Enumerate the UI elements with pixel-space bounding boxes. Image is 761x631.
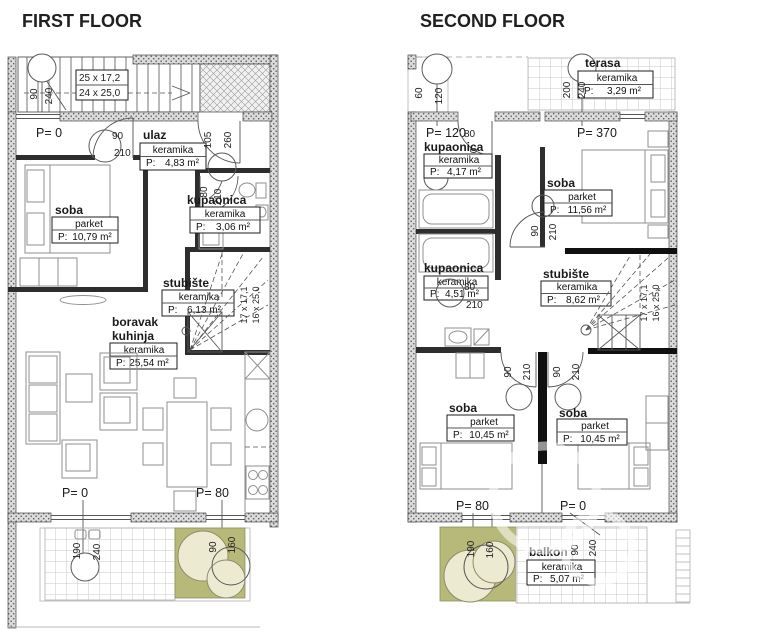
ff-stair-run-top: 25 x 17,2 [79,73,121,84]
second-floor-plan: SECOND FLOOR 60 120 terasa keramika P: 3… [408,11,690,603]
sf-soba1-name: soba [547,176,575,190]
ff-kupaonica-finish: keramika [205,209,246,220]
ff-dim-260: 260 [223,131,234,148]
sf-terasa-slider [620,115,645,119]
ff-soba-area: 10,79 m² [72,232,112,243]
sf-stubiste-area: 8,62 m² [566,295,601,306]
ff-winder-dim-a: 17 x 17,1 [239,286,249,323]
sf-terasa-area-box: keramika P: 3,29 m² [578,71,653,98]
ff-dim-105: 105 [203,131,214,148]
ff-sofa [26,352,60,444]
ff-ulaz-finish: keramika [153,145,194,156]
ff-boravak-name1: boravak [112,315,158,329]
ff-bottom-window [51,516,131,520]
ff-stubiste-area: 6,13 m² [187,305,222,316]
sf-soba2-door-w: 90 [503,366,514,378]
ff-dim-90-top: 90 [29,88,40,100]
sf-planter [440,527,516,602]
sf-level-top-right: P= 370 [577,126,617,140]
sf-balkon-p: P: [533,574,542,585]
ff-soba-p: P: [58,232,67,243]
ff-kupaonica-p: P: [196,222,205,233]
ff-boravak-area: 25,54 m² [129,358,169,369]
sf-soba1-finish: parket [568,192,596,203]
ff-dim-240b: 240 [92,543,103,560]
first-floor-plan: FIRST FLOOR 25 x 17,2 24 x 25,0 90 240 [8,11,278,628]
sf-dim-190: 190 [466,540,477,557]
sf-stubiste-finish: keramika [557,282,598,293]
sf-level-bottom-left: P= 80 [456,499,489,513]
sf-soba3-finish: parket [581,421,609,432]
sf-soba3-area-box: parket P: 10,45 m² [557,419,627,445]
ff-kupaonica-area: 3,06 m² [216,222,251,233]
sf-soba2-name: soba [449,401,477,415]
ff-entry-door-tag [208,153,236,181]
sf-soba3-p: P: [563,434,572,445]
sf-kup1-name: kupaonica [424,140,484,154]
sf-winder-dim-b: 16 x 25,0 [651,284,661,321]
sf-room-soba1: P= 370 soba parket P: 11,56 m² 90 210 [510,126,668,247]
sf-dim-120: 120 [434,87,445,104]
ff-planter [175,528,250,598]
sf-soba1-area-box: parket P: 11,56 m² [544,190,612,216]
ff-dim-160: 160 [227,536,238,553]
sf-kup1-area-box: keramika P: 4,17 m² [424,154,492,178]
sf-soba3-name: soba [559,406,587,420]
ff-ulaz-area-box: keramika P: 4,83 m² [140,143,206,170]
sf-kup2-p: P: [430,289,439,300]
ff-ulaz-area: 4,83 m² [165,158,200,169]
sf-dim-240: 240 [577,81,588,98]
ff-room-kupaonica: 80 210 kupaonica keramika P: 3,06 m² [187,176,268,249]
sf-level-bottom-right: P= 0 [560,499,586,513]
ff-stubiste-p: P: [168,305,177,316]
sf-soba2-finish: parket [470,417,498,428]
ff-boravak-p: P: [116,358,125,369]
sf-room-kupaonica1: P= 120 80 210 kupaonica keramika P: 4,17… [419,121,493,228]
sf-soba1-p: P: [550,205,559,216]
sf-kup1-finish: keramika [439,155,480,166]
sf-kup1-p: P: [430,167,439,178]
sf-stubiste-area-box: keramika P: 8,62 m² [541,281,611,306]
sf-soba2-door-tag [506,384,532,410]
ff-stubiste-name: stubište [163,276,209,290]
ff-canopy-hatch [200,64,270,112]
sf-terasa-finish: keramika [597,73,638,84]
ff-terrace: 190 240 90 160 [8,528,260,627]
ff-kupaonica-area-box: keramika P: 3,06 m² [190,207,260,233]
sf-kup2-door-w: 80 [464,282,476,293]
floor-plan-sheet: FIRST FLOOR 25 x 17,2 24 x 25,0 90 240 [0,0,761,631]
ff-room-stubiste: stubište keramika P: 6,13 m² 17 x [162,252,268,352]
ff-ulaz-p: P: [146,158,155,169]
sf-soba1-door-w: 90 [530,225,541,237]
ff-ulaz-name: ulaz [143,128,166,142]
sf-terasa-name: terasa [585,56,621,70]
ff-terrace-paving [45,528,175,600]
ff-top-window [16,115,60,119]
sf-dim-200: 200 [562,81,573,98]
ff-stubiste-finish: keramika [179,292,220,303]
ff-room-soba: soba parket P: 10,79 m² [20,165,118,305]
sf-dim-60: 60 [414,87,425,99]
ff-dim-door210: 210 [114,148,131,159]
ff-armchairs [62,353,137,478]
sf-room-stubiste: stubište keramika P: 8,62 m² [541,254,675,350]
ff-winder-dim-b: 16 x 25,0 [251,286,261,323]
ff-kitchen [245,352,270,512]
sf-bathtub-1 [419,190,493,228]
ff-dim-190: 190 [72,542,83,559]
sf-stubiste-p: P: [547,295,556,306]
sf-dim-240b: 240 [588,539,599,556]
ff-dim-door90: 90 [112,131,124,142]
sf-soba2-door-h: 210 [522,363,533,380]
sf-bed1 [582,131,668,238]
ff-dim-240-top: 240 [44,87,55,104]
ff-boravak-area-box: keramika P: 25,54 m² [110,343,177,369]
sf-kup2-name: kupaonica [424,261,484,275]
ff-tree-symbol-top [28,54,56,82]
ff-soba-finish: parket [75,219,103,230]
sf-winder-dim-a: 17 x 17,1 [639,284,649,321]
sf-washbasin [445,328,471,346]
sf-kup2-area-box: keramika P: 4,51 m² [424,276,488,300]
ff-level-bottom-left: P= 0 [62,486,88,500]
first-floor-title: FIRST FLOOR [22,11,142,31]
ff-boravak-name2: kuhinja [112,329,154,343]
floor-plan-drawing: FIRST FLOOR 25 x 17,2 24 x 25,0 90 240 [0,0,761,631]
sf-stubiste-name: stubište [543,267,589,281]
sf-soba2-p: P: [453,430,462,441]
sf-trellis [676,530,690,602]
sf-soba1-door-h: 210 [548,223,559,240]
sf-dim-160: 160 [485,541,496,558]
sf-room-soba2: 90 210 soba parket P: 10,45 m² [420,352,536,489]
sf-toilet2 [474,329,489,345]
ff-stove [246,466,269,499]
sf-kup1-door-w: 80 [464,129,476,140]
sf-soba3-door-h: 210 [571,363,582,380]
sf-soba3-door-w: 90 [552,366,563,378]
ff-kitchen-sink [246,409,268,431]
sf-room-soba3: 90 210 soba parket P: 10,45 m² [548,352,668,489]
ff-kupaonica-name: kupaonica [187,193,247,207]
ff-level-bottom-right: P= 80 [196,486,229,500]
ff-top-staircase: 25 x 17,2 24 x 25,0 90 240 [18,54,277,112]
ff-dim-90b: 90 [208,541,219,553]
ff-canopy-wall [133,55,277,64]
ff-soba-name: soba [55,203,83,217]
second-floor-title: SECOND FLOOR [420,11,565,31]
sf-terasa-area: 3,29 m² [607,86,642,97]
ff-terrace-door [206,516,245,520]
ff-soba-area-box: parket P: 10,79 m² [52,217,118,243]
ff-tv [60,296,106,305]
ff-stair-run-bottom: 24 x 25,0 [79,88,121,99]
ff-side-table [66,374,92,402]
ff-boravak-finish: keramika [124,345,165,356]
sf-soba1-area: 11,56 m² [568,205,607,216]
sf-soba2-area-box: parket P: 10,45 m² [447,415,514,441]
sf-soba2-area: 10,45 m² [469,430,509,441]
sf-porch-tree [422,54,452,84]
ff-level-top: P= 0 [36,126,62,140]
sf-room-kupaonica2: kupaonica keramika P: 4,51 m² 80 210 [419,234,493,346]
ff-wardrobe [20,258,77,286]
sf-soba3-area: 10,45 m² [580,434,620,445]
sf-kup2-door-h: 210 [466,300,483,311]
sf-kup1-area: 4,17 m² [447,167,482,178]
